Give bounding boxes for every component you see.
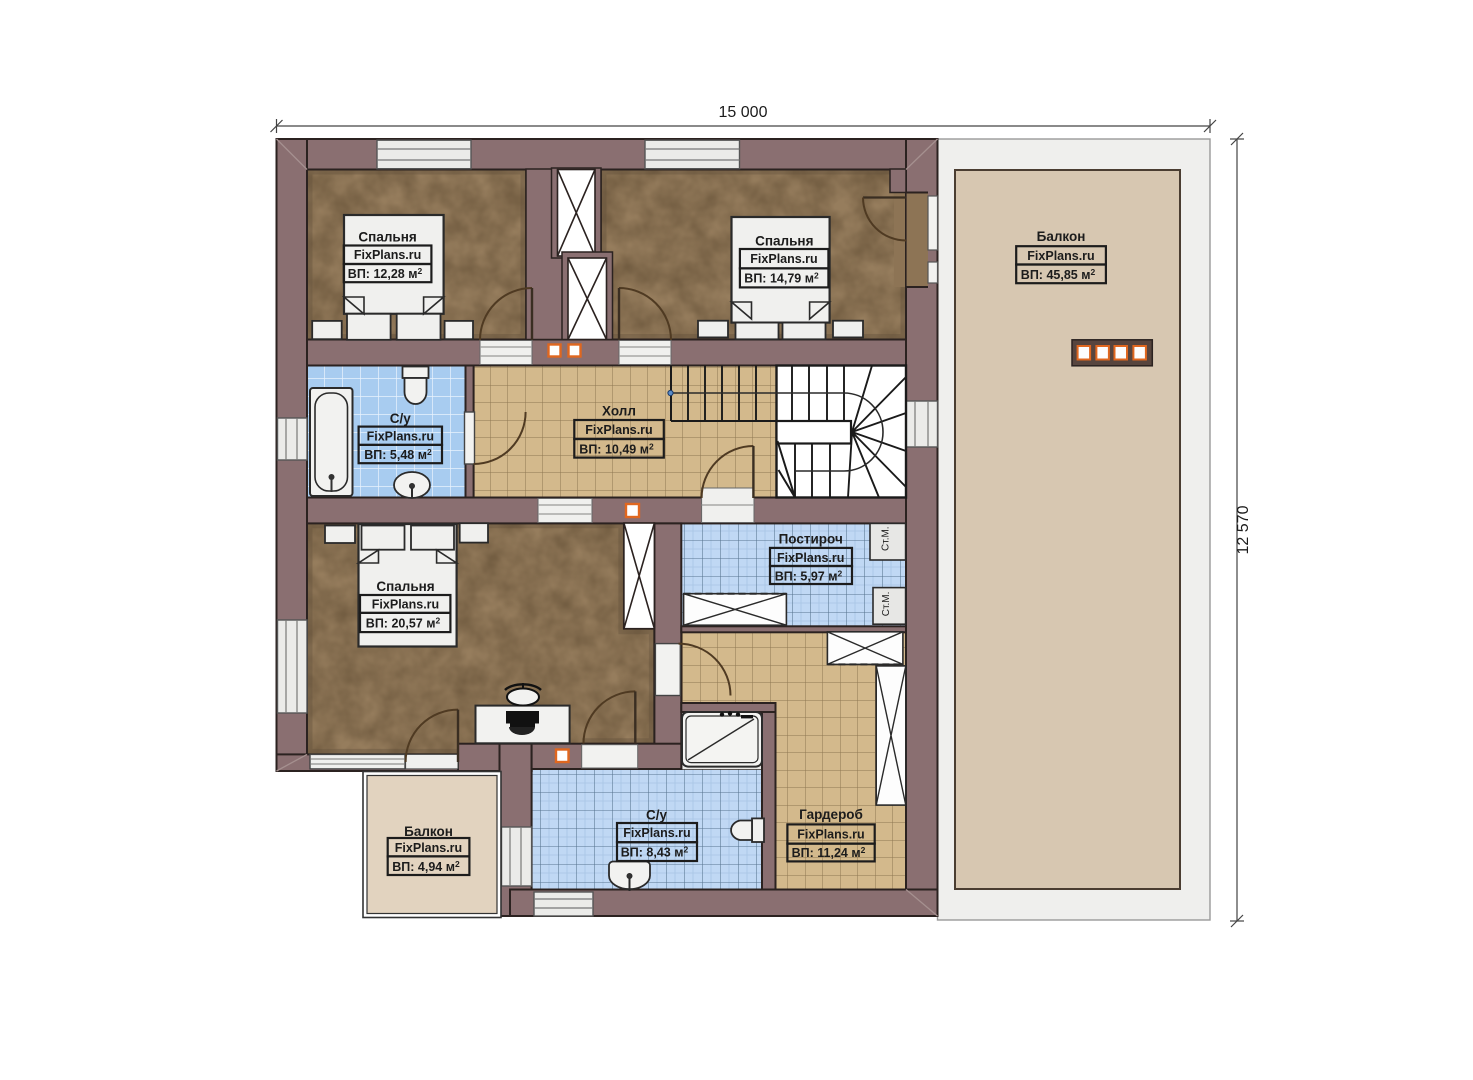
svg-text:ВП: 20,57 м2: ВП: 20,57 м2 [366, 616, 441, 631]
svg-text:ВП: 5,48 м2: ВП: 5,48 м2 [364, 447, 432, 462]
svg-text:Балкон: Балкон [404, 824, 453, 839]
svg-text:12 570: 12 570 [1235, 505, 1252, 554]
svg-text:Ст.М.: Ст.М. [881, 592, 892, 617]
svg-text:FixPlans.ru: FixPlans.ru [777, 551, 844, 565]
svg-text:Гардероб: Гардероб [799, 807, 863, 822]
svg-text:FixPlans.ru: FixPlans.ru [395, 841, 462, 855]
svg-text:Спальня: Спальня [376, 579, 434, 594]
svg-text:15 000: 15 000 [719, 104, 768, 121]
svg-text:Ст.М.: Ст.М. [880, 526, 891, 551]
svg-text:FixPlans.ru: FixPlans.ru [354, 248, 421, 262]
svg-text:FixPlans.ru: FixPlans.ru [585, 423, 652, 437]
svg-text:ВП: 10,49 м2: ВП: 10,49 м2 [579, 441, 654, 456]
svg-text:Холл: Холл [602, 403, 636, 418]
svg-text:Спальня: Спальня [358, 230, 416, 245]
svg-text:FixPlans.ru: FixPlans.ru [1027, 249, 1094, 263]
svg-text:Балкон: Балкон [1037, 229, 1086, 244]
svg-text:Спальня: Спальня [755, 234, 813, 249]
svg-text:FixPlans.ru: FixPlans.ru [367, 429, 434, 443]
svg-text:С/у: С/у [390, 411, 412, 426]
svg-text:ВП: 8,43 м2: ВП: 8,43 м2 [621, 844, 689, 859]
svg-text:ВП: 14,79 м2: ВП: 14,79 м2 [744, 270, 819, 285]
svg-text:FixPlans.ru: FixPlans.ru [750, 252, 817, 266]
svg-text:FixPlans.ru: FixPlans.ru [372, 598, 439, 612]
svg-text:С/у: С/у [646, 808, 668, 823]
svg-text:ВП: 5,97 м2: ВП: 5,97 м2 [775, 568, 843, 583]
svg-text:FixPlans.ru: FixPlans.ru [623, 826, 690, 840]
svg-text:FixPlans.ru: FixPlans.ru [797, 828, 864, 842]
svg-text:ВП: 12,28 м2: ВП: 12,28 м2 [348, 266, 423, 281]
svg-text:ВП: 4,94 м2: ВП: 4,94 м2 [392, 859, 460, 874]
svg-text:Постироч: Постироч [779, 531, 843, 546]
svg-text:ВП: 45,85 м2: ВП: 45,85 м2 [1021, 267, 1096, 282]
svg-text:ВП: 11,24 м2: ВП: 11,24 м2 [792, 845, 866, 860]
